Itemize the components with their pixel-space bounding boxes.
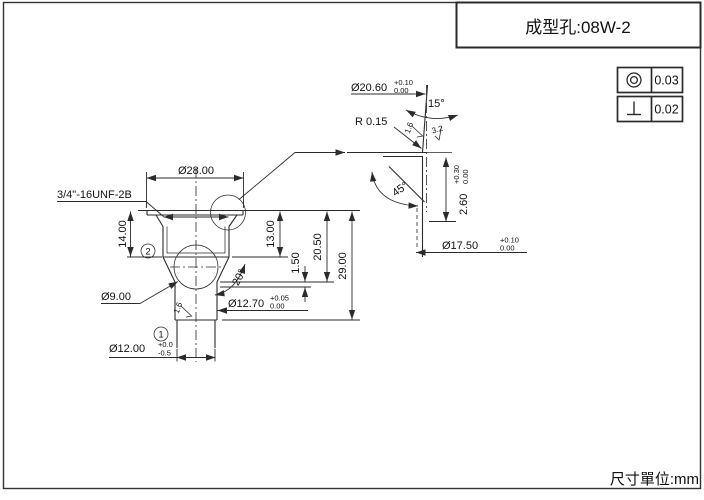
detail-circle: [211, 195, 246, 230]
dim-d1750-label: Ø17.50: [442, 240, 478, 252]
detail-rough32-label: 3.2: [431, 124, 445, 136]
dim-depth-260: 2.60 +0.30 0.00: [429, 158, 470, 222]
dim-d260-tol-plus: +0.30: [452, 165, 461, 184]
dim-diameter-1750: Ø17.50 +0.10 0.00: [416, 236, 527, 253]
dim-diameter-1270: Ø12.70 +0.05 0.00: [218, 294, 309, 311]
dim-d1200-label: Ø12.00: [109, 343, 145, 355]
dim-d14-label: 14.00: [117, 220, 129, 248]
dim-diameter-9: Ø9.00: [101, 282, 178, 304]
dim-a20-label: 20°: [230, 267, 248, 287]
main-view: Ø28.00 3/4"-16UNF-2B 14.00 2 Ø9.00: [57, 153, 360, 363]
detail-view: Ø20.60 +0.10 0.00 15° R 0.15 1.6 3.2: [347, 78, 527, 257]
detail-view-outline: [347, 85, 452, 257]
dim-d9-label: Ø9.00: [101, 291, 131, 303]
detail-rough16-label: 1.6: [403, 121, 415, 135]
dim-d2050-label: 20.50: [312, 233, 324, 261]
dim-d28-label: Ø28.00: [178, 165, 214, 177]
dim-r015-label: R 0.15: [355, 116, 387, 128]
drawing-sheet: 成型孔:08W-2 0.03 0.02: [0, 0, 704, 495]
dim-a45-label: 45°: [390, 180, 411, 199]
dim-d260-label: 2.60: [458, 194, 470, 215]
balloon-1-label: 1: [158, 330, 163, 341]
dim-d13-label: 13.00: [265, 220, 277, 248]
engineering-drawing: 成型孔:08W-2 0.03 0.02: [0, 0, 704, 495]
dim-d150-label: 1.50: [290, 252, 302, 273]
perpendicularity-value: 0.02: [654, 103, 678, 117]
dim-thread-label: 3/4"-16UNF-2B: [57, 189, 132, 201]
dim-angle-20: 20°: [215, 264, 249, 295]
detail-reference: [211, 153, 346, 231]
dim-diameter-2060: Ø20.60 +0.10 0.00: [351, 78, 426, 95]
perpendicularity-icon: [627, 102, 641, 115]
main-view-outline: [138, 168, 252, 362]
dim-thread-callout: 3/4"-16UNF-2B: [57, 189, 229, 217]
concentricity-icon: [627, 73, 641, 87]
tolerance-frame-concentricity: 0.03: [618, 68, 683, 93]
tolerance-frame-perpendicularity: 0.02: [618, 97, 683, 122]
dim-d1200-tol-minus: -0.5: [158, 349, 171, 358]
main-rough16-label: 1.6: [172, 301, 184, 315]
dim-d1270-label: Ø12.70: [228, 298, 264, 310]
concentricity-value: 0.03: [654, 74, 678, 88]
dim-d2900-label: 29.00: [337, 252, 349, 280]
dim-a15-label: 15°: [428, 98, 445, 110]
dim-d2060-label: Ø20.60: [351, 82, 387, 94]
balloon-2: 2: [141, 244, 155, 258]
dim-diameter-12: Ø12.00 +0.0 -0.5: [109, 340, 216, 362]
title-block: 成型孔:08W-2: [457, 3, 701, 48]
units-note: 尺寸單位:mm: [610, 471, 699, 488]
balloon-1: 1: [154, 327, 168, 341]
dim-angle-15: 15°: [406, 98, 458, 119]
dim-d1270-tol-minus: 0.00: [270, 302, 285, 311]
roughness-icon: 3.2: [431, 124, 446, 142]
dim-d1750-tol-minus: 0.00: [500, 244, 515, 253]
drawing-title: 成型孔:08W-2: [525, 18, 631, 37]
dim-diameter-28: Ø28.00: [147, 165, 244, 208]
dim-d260-tol-minus: 0.00: [461, 169, 470, 184]
balloon-2-label: 2: [145, 247, 150, 258]
